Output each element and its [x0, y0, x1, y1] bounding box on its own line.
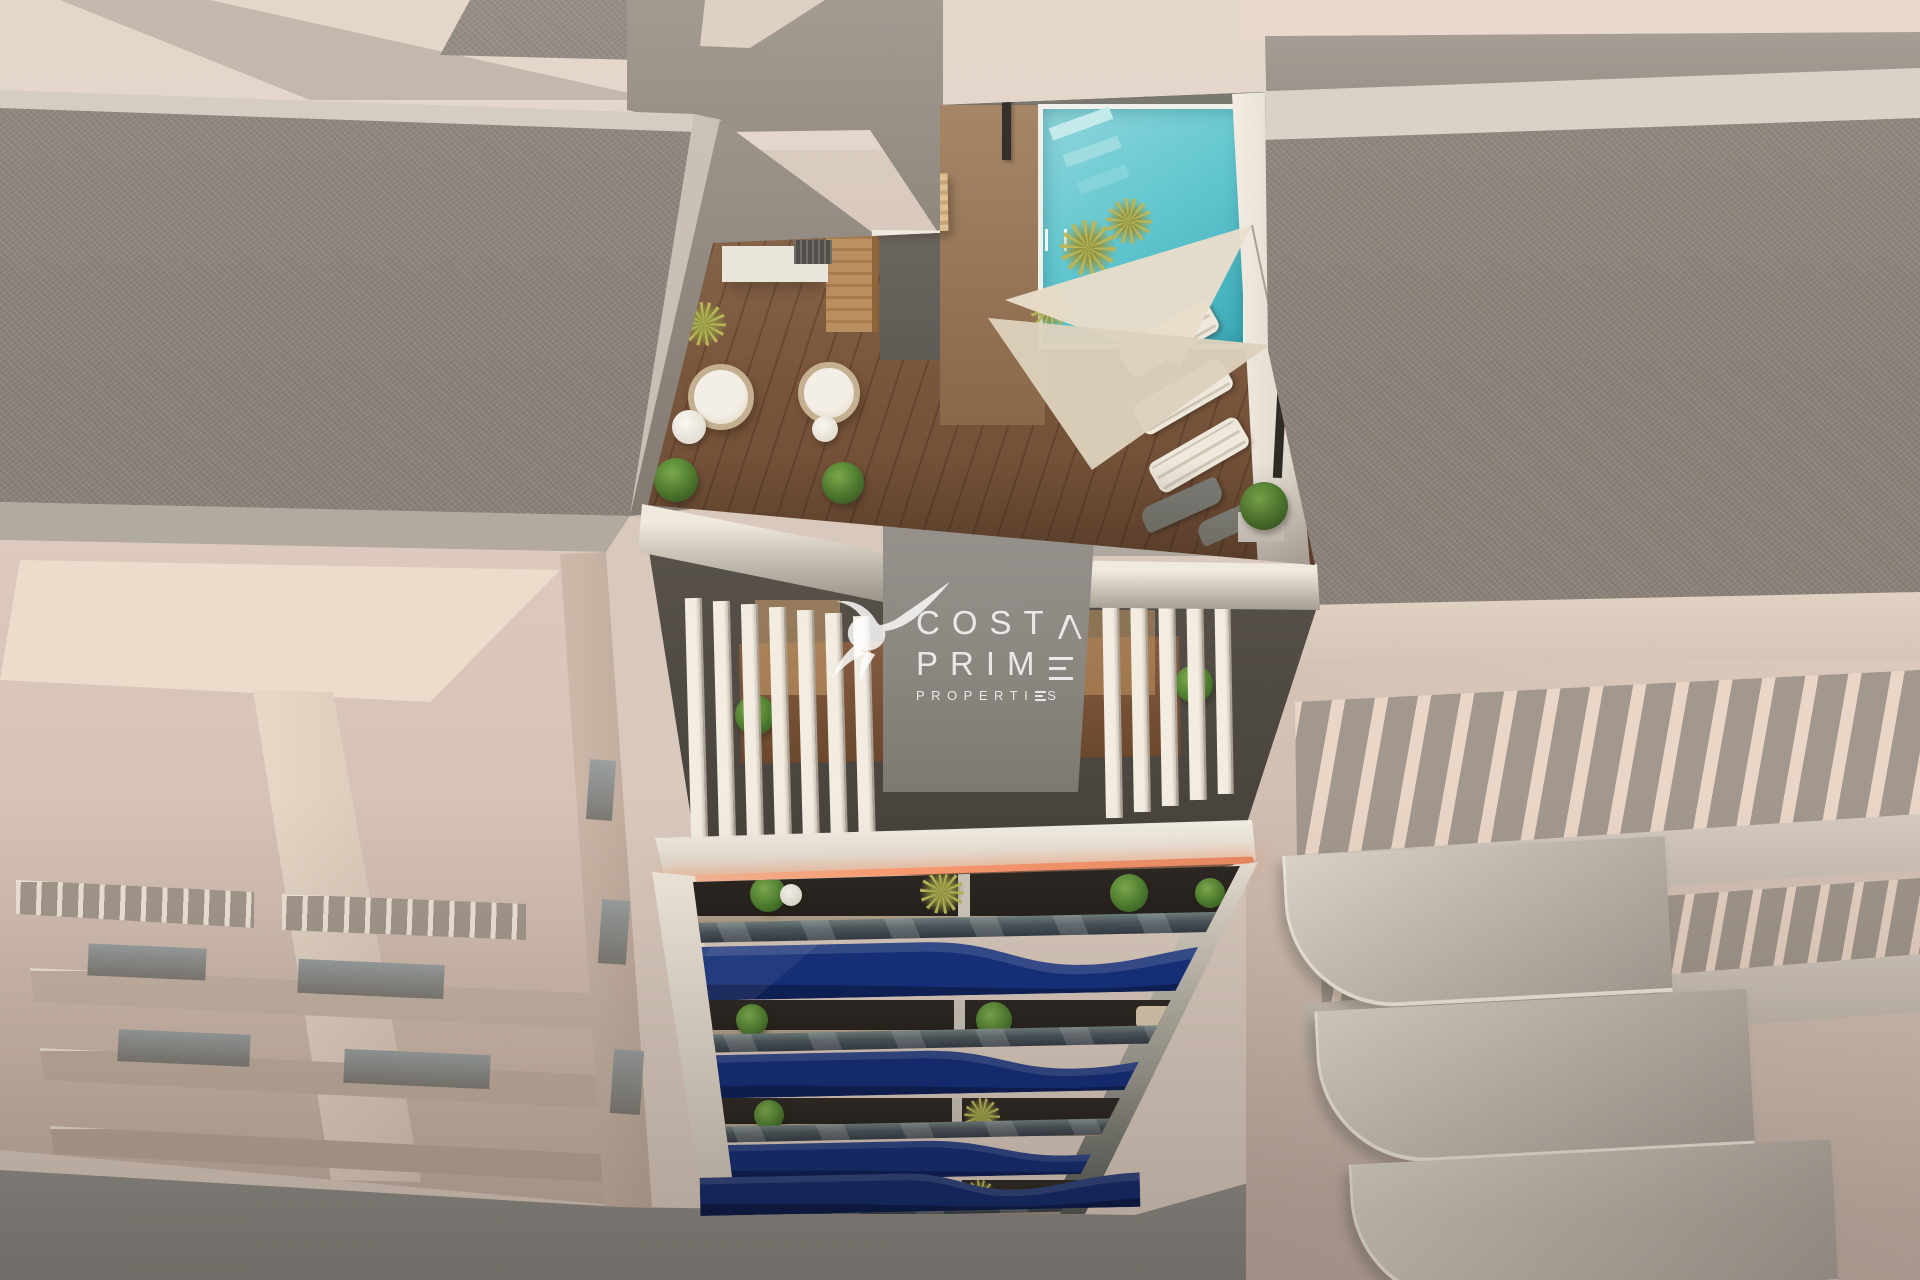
stylized-a-glyph: [1058, 615, 1082, 639]
pool-step-2: [1063, 135, 1122, 167]
terrace-light-deck-strip: [940, 105, 1045, 425]
terrace-bush-west-2: [822, 462, 864, 504]
bbq-grill: [794, 240, 832, 264]
pool-palm-2: [1106, 198, 1152, 244]
watermark-line-1: COST: [916, 606, 1082, 639]
stylized-e-glyph: [1049, 656, 1073, 680]
watermark-text-properties-tail: S: [1047, 689, 1062, 702]
left-side-wall-slot-2: [598, 899, 630, 965]
side-table-2: [812, 416, 838, 442]
watermark-text-properties: PROPERTI: [916, 689, 1034, 702]
render-scene: COST PRIM PROPERTIS: [0, 0, 1920, 1280]
pool-palm-3: [1030, 288, 1070, 328]
right-curved-balcony-2: [1314, 989, 1755, 1167]
watermark-line-2: PRIM: [916, 647, 1082, 680]
balcony-wave-1: [639, 927, 1260, 1002]
left-roof-gravel: [0, 104, 700, 524]
egg-chair-2: [798, 362, 860, 424]
side-table-1: [672, 410, 706, 444]
bush-se: [1240, 482, 1288, 530]
pool-step-1: [1049, 106, 1114, 140]
left-side-wall-slot-3: [610, 1049, 644, 1115]
left-window-3: [117, 1029, 250, 1067]
balcony-chair-1: [780, 884, 802, 906]
right-roof-gravel: [1244, 112, 1920, 622]
balcony-wave-4: [700, 1163, 1141, 1216]
terrace-bush-west-1: [654, 458, 698, 502]
balcony-plant-1c: [1195, 878, 1225, 908]
right-curved-balcony-1: [1282, 836, 1673, 1012]
balcony-plant-1b: [1110, 874, 1148, 912]
right-curved-balcony-3: [1349, 1139, 1839, 1280]
watermark: COST PRIM PROPERTIS: [830, 574, 1130, 714]
pool-step-3: [1076, 164, 1129, 194]
left-window-1: [87, 943, 206, 980]
sauna-cabinet: [826, 232, 878, 332]
stylized-e-glyph-small: [1035, 691, 1046, 702]
left-side-wall-slot-1: [586, 759, 616, 821]
watermark-text-costa: COST: [916, 606, 1056, 639]
left-window-2: [297, 959, 444, 999]
balcony-palm-1: [920, 870, 964, 914]
watermark-line-3: PROPERTIS: [916, 689, 1082, 702]
left-window-4: [343, 1049, 490, 1089]
balcony-plant-2a: [736, 1004, 768, 1036]
watermark-text-prime: PRIM: [916, 647, 1047, 680]
